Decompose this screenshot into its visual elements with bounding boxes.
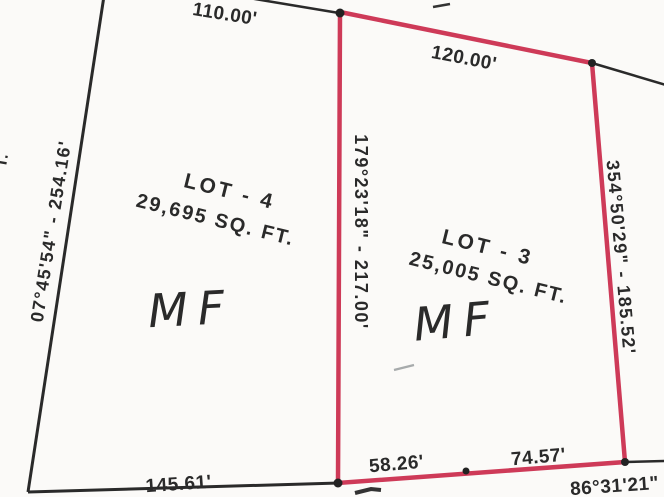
stray-mark	[433, 4, 450, 7]
corner-marker	[588, 59, 596, 67]
plat-map-scan: 110.00' 120.00' 07°45'54" - 254.16' 179°…	[0, 0, 664, 497]
boundary-line-bottom-right	[625, 461, 664, 462]
corner-marker	[463, 468, 470, 475]
bearing-label-center: 179°23'18" - 217.00'	[351, 134, 371, 329]
clipped-text-fragment	[355, 489, 381, 493]
dimension-label-bottom-seg-left: 58.26'	[368, 452, 425, 478]
dimension-label-top-left: 110.00'	[191, 0, 259, 30]
corner-marker	[621, 458, 629, 466]
dimension-label-top-right: 120.00'	[430, 42, 499, 75]
street-label-partial: T.	[0, 152, 12, 169]
pencil-dash-mark	[394, 365, 414, 370]
dimension-label-bottom-left: 145.61'	[145, 472, 212, 497]
boundary-line-top-right	[592, 63, 664, 85]
lot3-handwritten-initials: MF	[411, 290, 502, 351]
bearing-label-bottom-right: 86°31'21"	[569, 473, 659, 497]
corner-marker	[336, 9, 345, 18]
corner-marker	[334, 479, 343, 488]
lot4-handwritten-initials: MF	[147, 280, 236, 338]
plat-canvas: 110.00' 120.00' 07°45'54" - 254.16' 179°…	[0, 0, 664, 497]
